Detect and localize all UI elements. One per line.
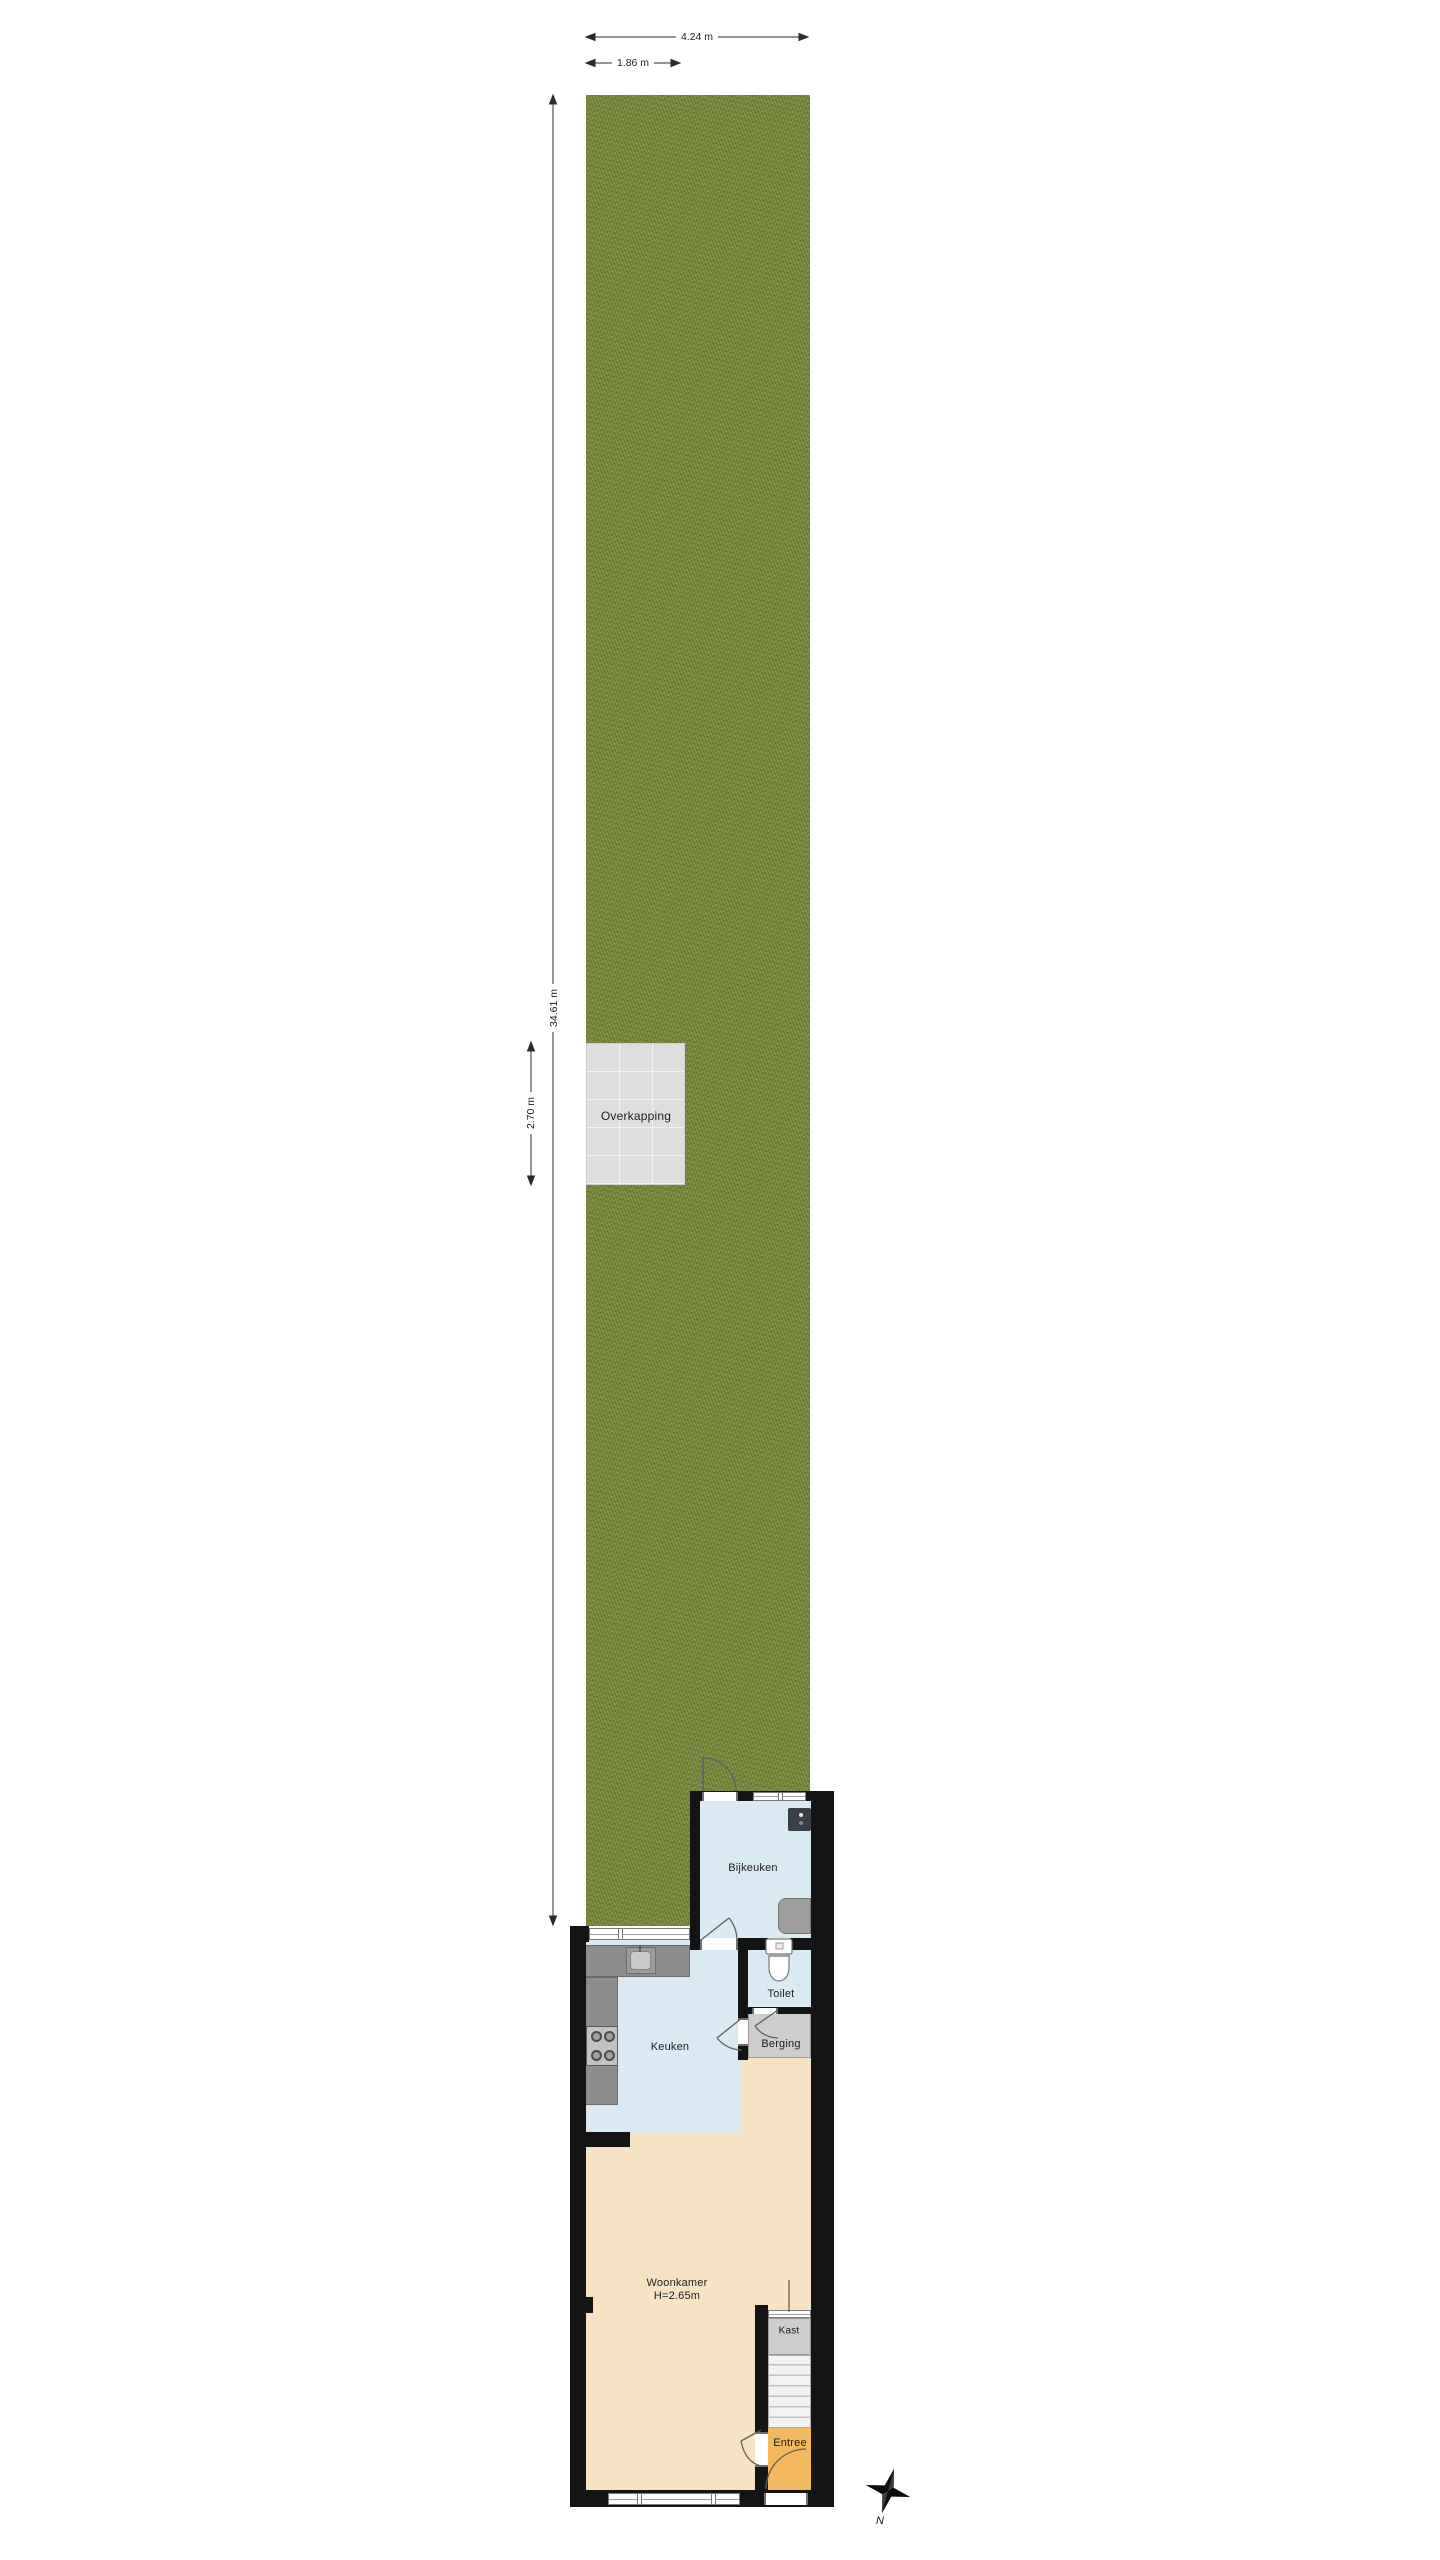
toilet-door-opening — [752, 2008, 778, 2014]
bijkeuken-label: Bijkeuken — [728, 1862, 778, 1874]
kast-label: Kast — [779, 2326, 800, 2337]
window-mullion — [711, 2493, 716, 2505]
wall-left — [570, 1926, 586, 2507]
toilet-label: Toilet — [768, 1988, 795, 2000]
wall-berging-left-b — [738, 2046, 748, 2060]
wall-toilet-left — [738, 1950, 748, 2008]
overkapping-label: Overkapping — [601, 1109, 671, 1123]
floorplan-canvas: 4.24 m 1.86 m 34.61 m 2.70 m Overkapping… — [0, 0, 1440, 2560]
entree-door-opening — [755, 2432, 768, 2467]
garden-door-opening — [702, 1792, 738, 1801]
woonkamer-floor-strip — [742, 2058, 811, 2133]
entree-label: Entree — [773, 2437, 807, 2449]
wall-bijkeuken-bottom-b — [790, 1938, 811, 1950]
kast-opening-band — [768, 2310, 811, 2318]
bijkeuken-window — [753, 1792, 806, 1801]
staircase — [768, 2355, 811, 2428]
wall-topleft-corner — [570, 1926, 589, 1942]
window-mullion — [618, 1928, 623, 1940]
burner-icon — [604, 2031, 615, 2042]
woonkamer-ceiling-label: H=2.65m — [654, 2290, 700, 2302]
wall-right — [811, 1791, 834, 2507]
bijkeuken-worktop — [778, 1898, 811, 1934]
wall-kitchen-stub — [570, 2132, 630, 2147]
window-mullion — [778, 1792, 783, 1801]
dim-plot-depth: 34.61 m — [548, 984, 560, 1032]
keuken-label: Keuken — [651, 2041, 690, 2053]
woonkamer-label: Woonkamer — [647, 2277, 708, 2289]
kitchen-sink-basin — [630, 1951, 651, 1970]
washing-machine — [788, 1808, 811, 1831]
bijkeuken-keuken-door-opening — [700, 1939, 738, 1950]
kast-floor — [768, 2318, 811, 2355]
burner-icon — [604, 2050, 615, 2061]
garden-area — [586, 95, 810, 1926]
dim-overkapping-width: 1.86 m — [612, 57, 654, 69]
berging-floor — [748, 2013, 811, 2058]
berging-label: Berging — [761, 2038, 800, 2050]
wall-berging-left-a — [738, 2008, 748, 2018]
front-door-opening — [764, 2493, 808, 2505]
woonkamer-window — [608, 2493, 740, 2505]
wall-chimney-stub — [586, 2297, 593, 2313]
wall-bijkeuken-left — [690, 1791, 700, 1950]
compass-north-label: N — [876, 2515, 884, 2527]
window-mullion — [637, 2493, 642, 2505]
dim-overkapping-depth: 2.70 m — [525, 1092, 537, 1134]
keuken-window — [589, 1928, 690, 1940]
washer-knob-icon — [799, 1813, 803, 1817]
stove-cooktop — [586, 2026, 618, 2066]
dim-plot-width: 4.24 m — [676, 31, 718, 43]
compass-rose-icon — [860, 2463, 916, 2519]
washer-knob-icon — [799, 1821, 803, 1825]
burner-icon — [591, 2050, 602, 2061]
berging-door-opening — [738, 2018, 748, 2046]
wall-bijkeuken-bottom-a — [738, 1938, 768, 1950]
burner-icon — [591, 2031, 602, 2042]
